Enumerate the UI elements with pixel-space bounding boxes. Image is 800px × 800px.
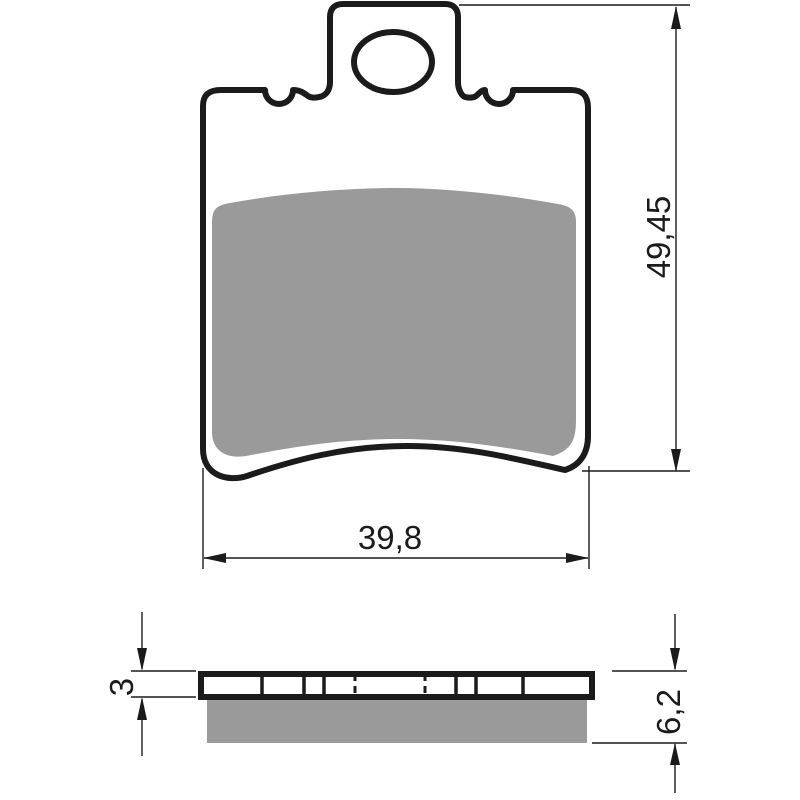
plate-thickness-dimension-label: 3 <box>103 678 140 696</box>
brake-pad-drawing: 49,45 39,8 3 <box>0 0 800 800</box>
side-backing-plate <box>201 674 592 697</box>
mounting-tab-hole <box>354 32 432 92</box>
dimension-plate-thickness: 3 <box>103 612 196 756</box>
plate-thickness-arrow-down-icon <box>137 648 147 671</box>
dimension-width: 39,8 <box>203 466 589 569</box>
dimension-total-thickness: 6,2 <box>592 614 687 793</box>
total-thickness-arrow-down-icon <box>670 648 680 671</box>
technical-drawing-canvas: 49,45 39,8 3 <box>0 0 800 800</box>
front-view <box>203 4 588 478</box>
total-thickness-arrow-up-icon <box>670 743 680 765</box>
side-view <box>201 674 592 743</box>
width-arrow-right-icon <box>566 553 589 563</box>
total-thickness-dimension-label: 6,2 <box>650 689 687 735</box>
plate-thickness-arrow-up-icon <box>137 697 147 720</box>
plate-segment-dividers <box>262 674 523 697</box>
width-dimension-label: 39,8 <box>358 519 422 556</box>
height-dimension-label: 49,45 <box>640 196 677 279</box>
height-arrow-down-icon <box>671 449 681 472</box>
height-arrow-up-icon <box>671 6 681 29</box>
side-friction-material <box>207 700 587 743</box>
width-arrow-left-icon <box>203 553 226 563</box>
front-friction-material <box>212 188 576 457</box>
